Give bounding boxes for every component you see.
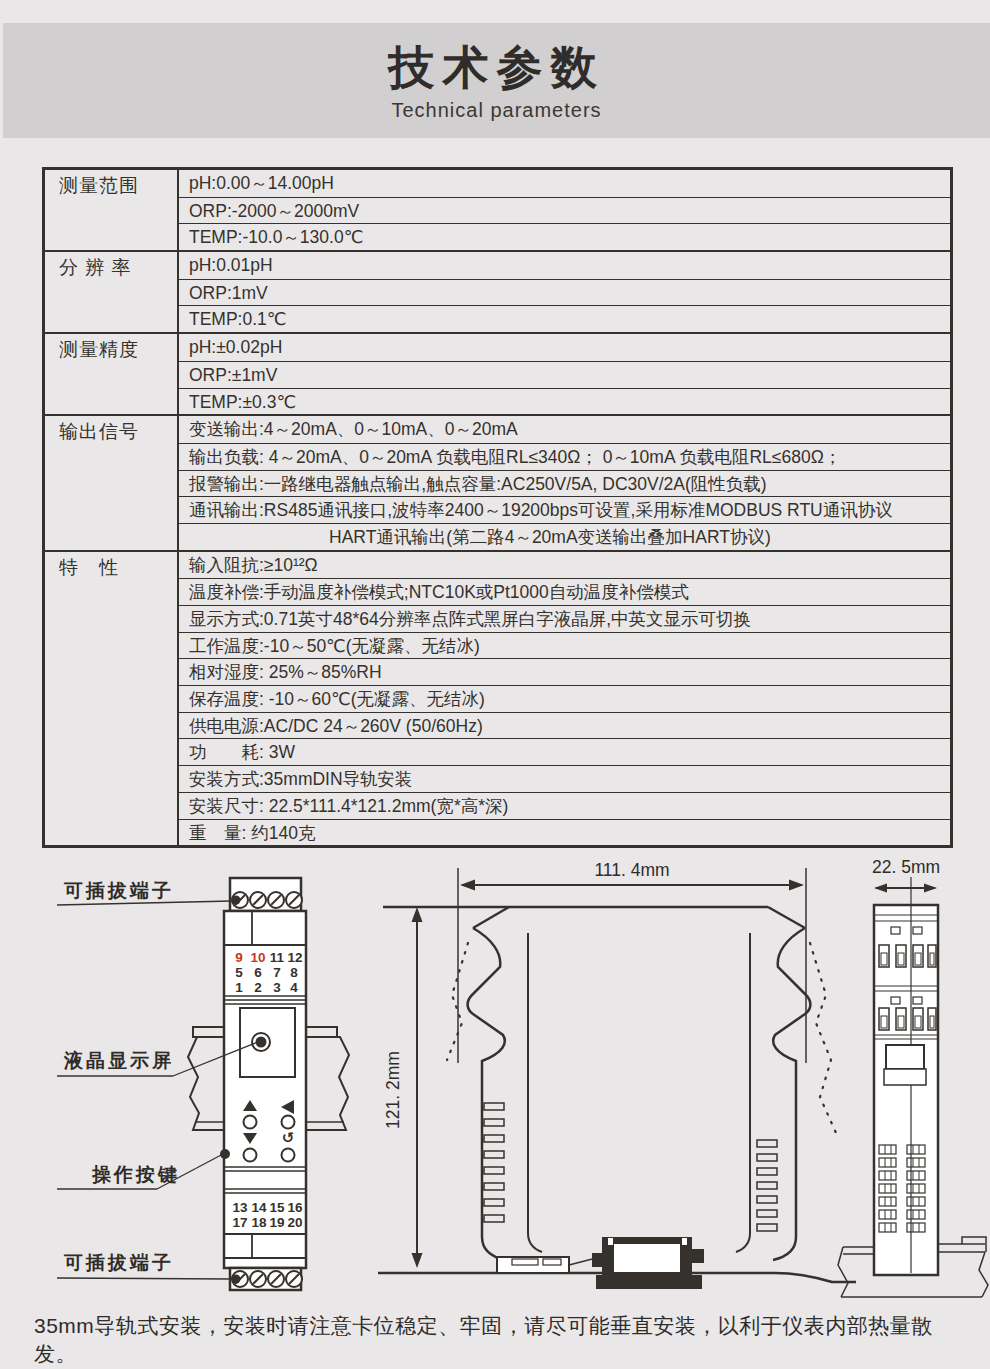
spec-item: pH:±0.02pH [179, 334, 950, 361]
spec-item: ORP:±1mV [179, 361, 950, 388]
enter-arrow-icon: ↺ [282, 1129, 295, 1147]
side-profile [383, 907, 836, 1260]
terminal-number: 14 [251, 1200, 267, 1215]
terminal-number: 4 [290, 980, 298, 995]
spec-item: pH:0.00～14.00pH [179, 170, 950, 197]
left-button [282, 1116, 295, 1129]
mounting-note: 35mm导轨式安装，安装时请注意卡位稳定、牢固，请尽可能垂直安装，以利于仪表内部… [34, 1312, 974, 1368]
spec-item: TEMP:0.1℃ [179, 305, 950, 332]
terminal-number: 18 [251, 1215, 267, 1230]
spec-table: 测量范围 pH:0.00～14.00pH ORP:-2000～2000mV TE… [42, 167, 953, 848]
terminal-number: 7 [273, 965, 281, 980]
category-label: 测量精度 [45, 334, 179, 414]
vent-slots-right [757, 1140, 777, 1231]
pointer-dot [220, 1149, 230, 1159]
pointer-dot [232, 1275, 241, 1284]
side-view: 111. 4mm 121. 2mm [378, 860, 856, 1289]
category-label: 特 性 [45, 552, 179, 846]
spec-item: 安装尺寸: 22.5*111.4*121.2mm(宽*高*深) [179, 792, 950, 819]
table-row-accuracy: 测量精度 pH:±0.02pH ORP:±1mV TEMP:±0.3℃ [45, 332, 950, 414]
category-label: 分 辨 率 [45, 252, 179, 332]
width-dimension-text: 111. 4mm [594, 860, 669, 880]
panel-width-dimension: 22. 5mm [872, 857, 940, 893]
spec-item: 供电电源:AC/DC 24～260V (50/60Hz) [179, 712, 950, 739]
table-row-measure-range: 测量范围 pH:0.00～14.00pH ORP:-2000～2000mV TE… [45, 170, 950, 250]
front-view: 9 10 11 12 5 6 7 8 1 2 3 4 [57, 878, 349, 1290]
module-body: 9 10 11 12 5 6 7 8 1 2 3 4 [220, 911, 306, 1268]
terminal-number: 15 [269, 1200, 285, 1215]
spec-item: 通讯输出:RS485通讯接口,波特率2400～19200bps可设置,采用标准M… [179, 496, 950, 523]
enter-button [282, 1149, 295, 1162]
label-top-terminal: 可插拔端子 [63, 880, 174, 901]
terminal-number: 5 [235, 965, 243, 980]
terminal-number: 17 [232, 1215, 247, 1230]
label-bottom-terminal: 可插拔端子 [63, 1252, 174, 1273]
spec-item: ORP:-2000～2000mV [179, 197, 950, 224]
spec-item: TEMP:±0.3℃ [179, 388, 950, 415]
terminal-number: 6 [254, 965, 262, 980]
spec-item: 相对湿度: 25%～85%RH [179, 658, 950, 685]
terminal-number: 2 [254, 980, 262, 995]
spec-item: 安装方式:35mmDIN导轨安装 [179, 765, 950, 792]
terminal-number: 19 [269, 1215, 284, 1230]
terminal-number: 13 [232, 1200, 248, 1215]
spec-item: 工作温度:-10～50℃(无凝露、无结冰) [179, 632, 950, 659]
spec-item: 报警输出:一路继电器触点输出,触点容量:AC250V/5A, DC30V/2A(… [179, 470, 950, 497]
vent-slots-left [484, 1103, 504, 1222]
down-button [244, 1149, 257, 1162]
spec-item: ORP:1mV [179, 279, 950, 306]
din-clip-assembly [378, 1237, 856, 1289]
spec-item: 保存温度: -10～60℃(无凝露、无结冰) [179, 685, 950, 712]
label-lcd: 液晶显示屏 [63, 1050, 174, 1071]
label-buttons: 操作按键 [91, 1164, 180, 1185]
panel-width-dimension-text: 22. 5mm [872, 857, 940, 877]
page-title: 技术参数 [3, 23, 990, 99]
terminal-number: 8 [290, 965, 298, 980]
din-rail-right [306, 1027, 349, 1130]
terminal-number: 10 [250, 950, 265, 965]
depth-dimension: 121. 2mm [383, 907, 423, 1268]
table-row-output-signal: 输出信号 变送输出:4～20mA、0～10mA、0～20mA 输出负载: 4～2… [45, 414, 950, 549]
category-label: 输出信号 [45, 416, 179, 549]
panel-view: 22. 5mm [838, 857, 988, 1297]
panel-body [874, 877, 938, 1275]
spec-item: 重 量: 约140克 [179, 819, 950, 846]
terminal-number: 20 [287, 1215, 302, 1230]
depth-dimension-text: 121. 2mm [383, 1051, 403, 1129]
terminal-number: 16 [287, 1200, 303, 1215]
din-rail-left [188, 1027, 224, 1130]
terminal-number: 9 [235, 950, 243, 965]
width-dimension: 111. 4mm [460, 860, 804, 891]
category-label: 测量范围 [45, 170, 179, 250]
table-row-resolution: 分 辨 率 pH:0.01pH ORP:1mV TEMP:0.1℃ [45, 250, 950, 332]
bottom-terminal-block [230, 1268, 302, 1290]
table-row-features: 特 性 输入阻抗:≥10¹²Ω 温度补偿:手动温度补偿模式;NTC10K或Pt1… [45, 550, 950, 846]
spec-item: 输入阻抗:≥10¹²Ω [179, 552, 950, 579]
header-banner: 技术参数 Technical parameters [3, 23, 990, 138]
spec-item: 功 耗: 3W [179, 738, 950, 765]
lcd-display [240, 1008, 295, 1077]
spec-item: TEMP:-10.0～130.0℃ [179, 223, 950, 250]
up-button [244, 1116, 257, 1129]
spec-item: HART通讯输出(第二路4～20mA变送输出叠加HART协议) [179, 523, 950, 550]
spec-item: pH:0.01pH [179, 252, 950, 279]
terminal-number: 3 [273, 980, 281, 995]
terminal-number: 1 [235, 980, 243, 995]
pointer-dot [232, 896, 241, 905]
spec-item: 输出负载: 4～20mA、0～20mA 负载电阻RL≤340Ω； 0～10mA … [179, 443, 950, 470]
spec-item: 显示方式:0.71英寸48*64分辨率点阵式黑屏白字液晶屏,中英文显示可切换 [179, 605, 950, 632]
top-terminal-block [230, 878, 302, 911]
spec-item: 变送输出:4～20mA、0～10mA、0～20mA [179, 416, 950, 443]
terminal-number: 12 [287, 950, 302, 965]
terminal-number: 11 [270, 950, 285, 965]
spec-item: 温度补偿:手动温度补偿模式;NTC10K或Pt1000自动温度补偿模式 [179, 578, 950, 605]
page-subtitle: Technical parameters [3, 99, 990, 122]
mounting-diagram: 9 10 11 12 5 6 7 8 1 2 3 4 [0, 845, 990, 1315]
